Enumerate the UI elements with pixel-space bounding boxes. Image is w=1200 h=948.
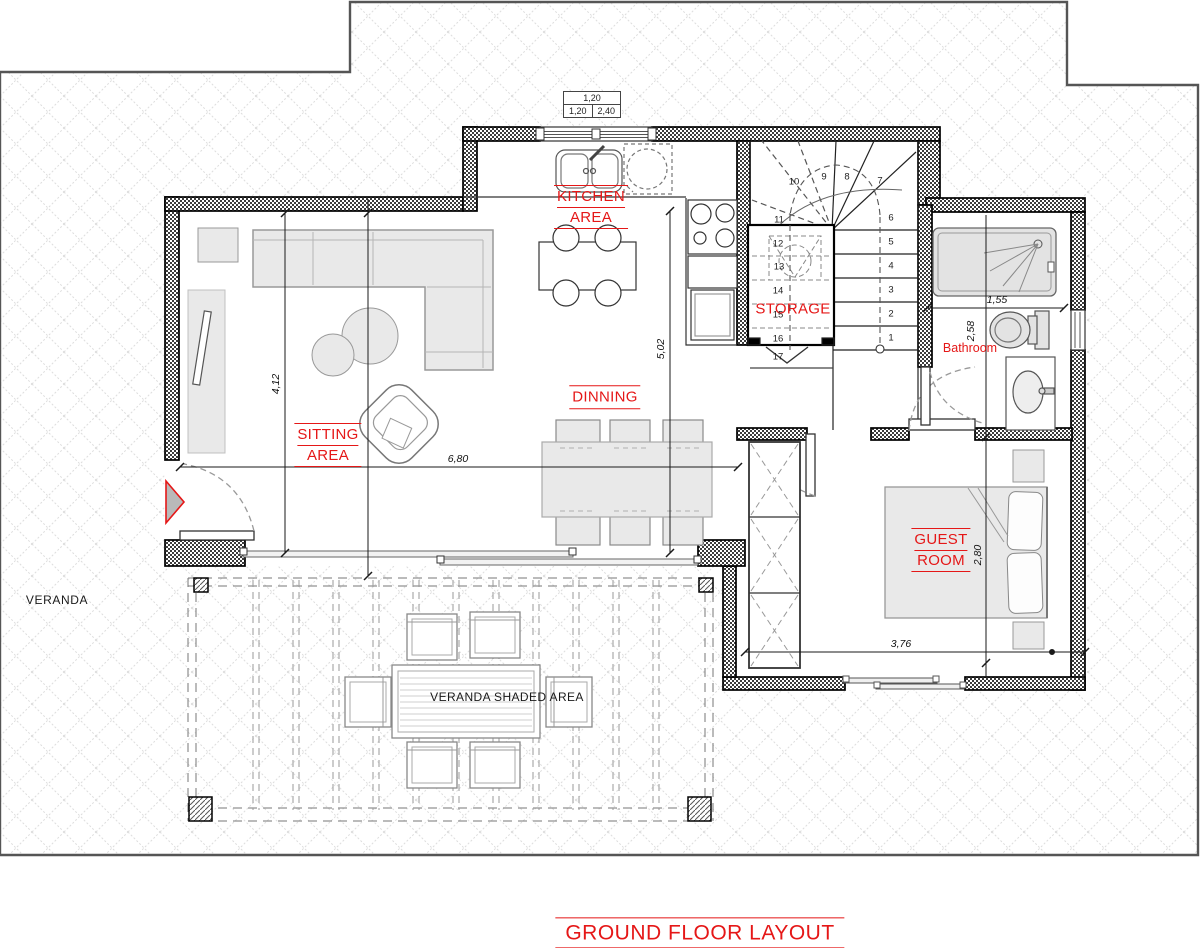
kitchen-area-label: KITCHEN AREA bbox=[554, 185, 628, 229]
stair-step-6: 6 bbox=[888, 213, 893, 224]
stair-step-12: 12 bbox=[773, 239, 784, 250]
top-dimension-table: 1,20 1,20 2,40 bbox=[563, 91, 621, 118]
shower bbox=[933, 228, 1056, 296]
dining-table bbox=[542, 442, 712, 517]
stair-step-10: 10 bbox=[789, 177, 800, 188]
stair-step-4: 4 bbox=[888, 261, 893, 272]
veranda-label: VERANDA bbox=[26, 593, 88, 607]
dim-dining-height: 5,02 bbox=[655, 339, 667, 359]
stair-step-14: 14 bbox=[773, 286, 784, 297]
stair-step-13: 13 bbox=[774, 262, 785, 273]
stair-step-2: 2 bbox=[888, 309, 893, 320]
veranda-shaded-label: VERANDA SHADED AREA bbox=[430, 690, 584, 704]
floor-plan-page: 1,20 1,20 2,40 KITCHEN AREA SITTING AREA… bbox=[0, 0, 1200, 948]
coffee-table-small bbox=[312, 334, 354, 376]
kitchen-window bbox=[536, 127, 656, 141]
dim-row1: 1,20 bbox=[564, 92, 620, 105]
stair-step-7: 7 bbox=[877, 176, 882, 187]
cooktop bbox=[688, 200, 737, 254]
bathroom-side-window bbox=[1071, 310, 1085, 350]
sitting-area-label: SITTING AREA bbox=[294, 423, 361, 467]
bathroom-label: Bathroom bbox=[943, 341, 997, 355]
drawing-title: GROUND FLOOR LAYOUT bbox=[555, 917, 844, 948]
bathroom-vanity bbox=[1006, 357, 1055, 430]
stair-step-9: 9 bbox=[821, 172, 826, 183]
wardrobe bbox=[749, 442, 800, 668]
dim-living-height: 4,12 bbox=[270, 374, 282, 394]
stair-step-15: 15 bbox=[773, 310, 784, 321]
stair-step-11: 11 bbox=[774, 215, 784, 226]
stair-step-3: 3 bbox=[888, 285, 893, 296]
nightstand-top bbox=[1013, 450, 1044, 482]
dim-guest-width: 3,76 bbox=[891, 638, 911, 650]
dim-guest-height: 2,80 bbox=[972, 545, 984, 565]
stair-step-17: 17 bbox=[773, 352, 784, 363]
stair-step-5: 5 bbox=[888, 237, 893, 248]
dining-set bbox=[542, 420, 712, 545]
side-table bbox=[198, 228, 238, 262]
storage-box bbox=[748, 225, 834, 345]
toilet bbox=[990, 311, 1049, 349]
dining-label: DINNING bbox=[569, 385, 640, 409]
dim-living-width: 6,80 bbox=[448, 453, 468, 465]
dim-row2-left: 1,20 bbox=[564, 105, 593, 117]
dim-row2-right: 2,40 bbox=[593, 105, 621, 117]
storage-label: STORAGE bbox=[755, 301, 830, 318]
nightstand-bottom bbox=[1013, 622, 1044, 649]
stair-step-1: 1 bbox=[888, 333, 893, 344]
stair-step-16: 16 bbox=[773, 334, 784, 345]
dim-bathroom-height: 2,58 bbox=[965, 321, 977, 341]
stair-step-8: 8 bbox=[844, 172, 849, 183]
dim-bathroom-width: 1,55 bbox=[987, 294, 1007, 306]
floor-plan-drawing bbox=[0, 0, 1200, 948]
guest-room-label: GUEST ROOM bbox=[911, 528, 970, 572]
